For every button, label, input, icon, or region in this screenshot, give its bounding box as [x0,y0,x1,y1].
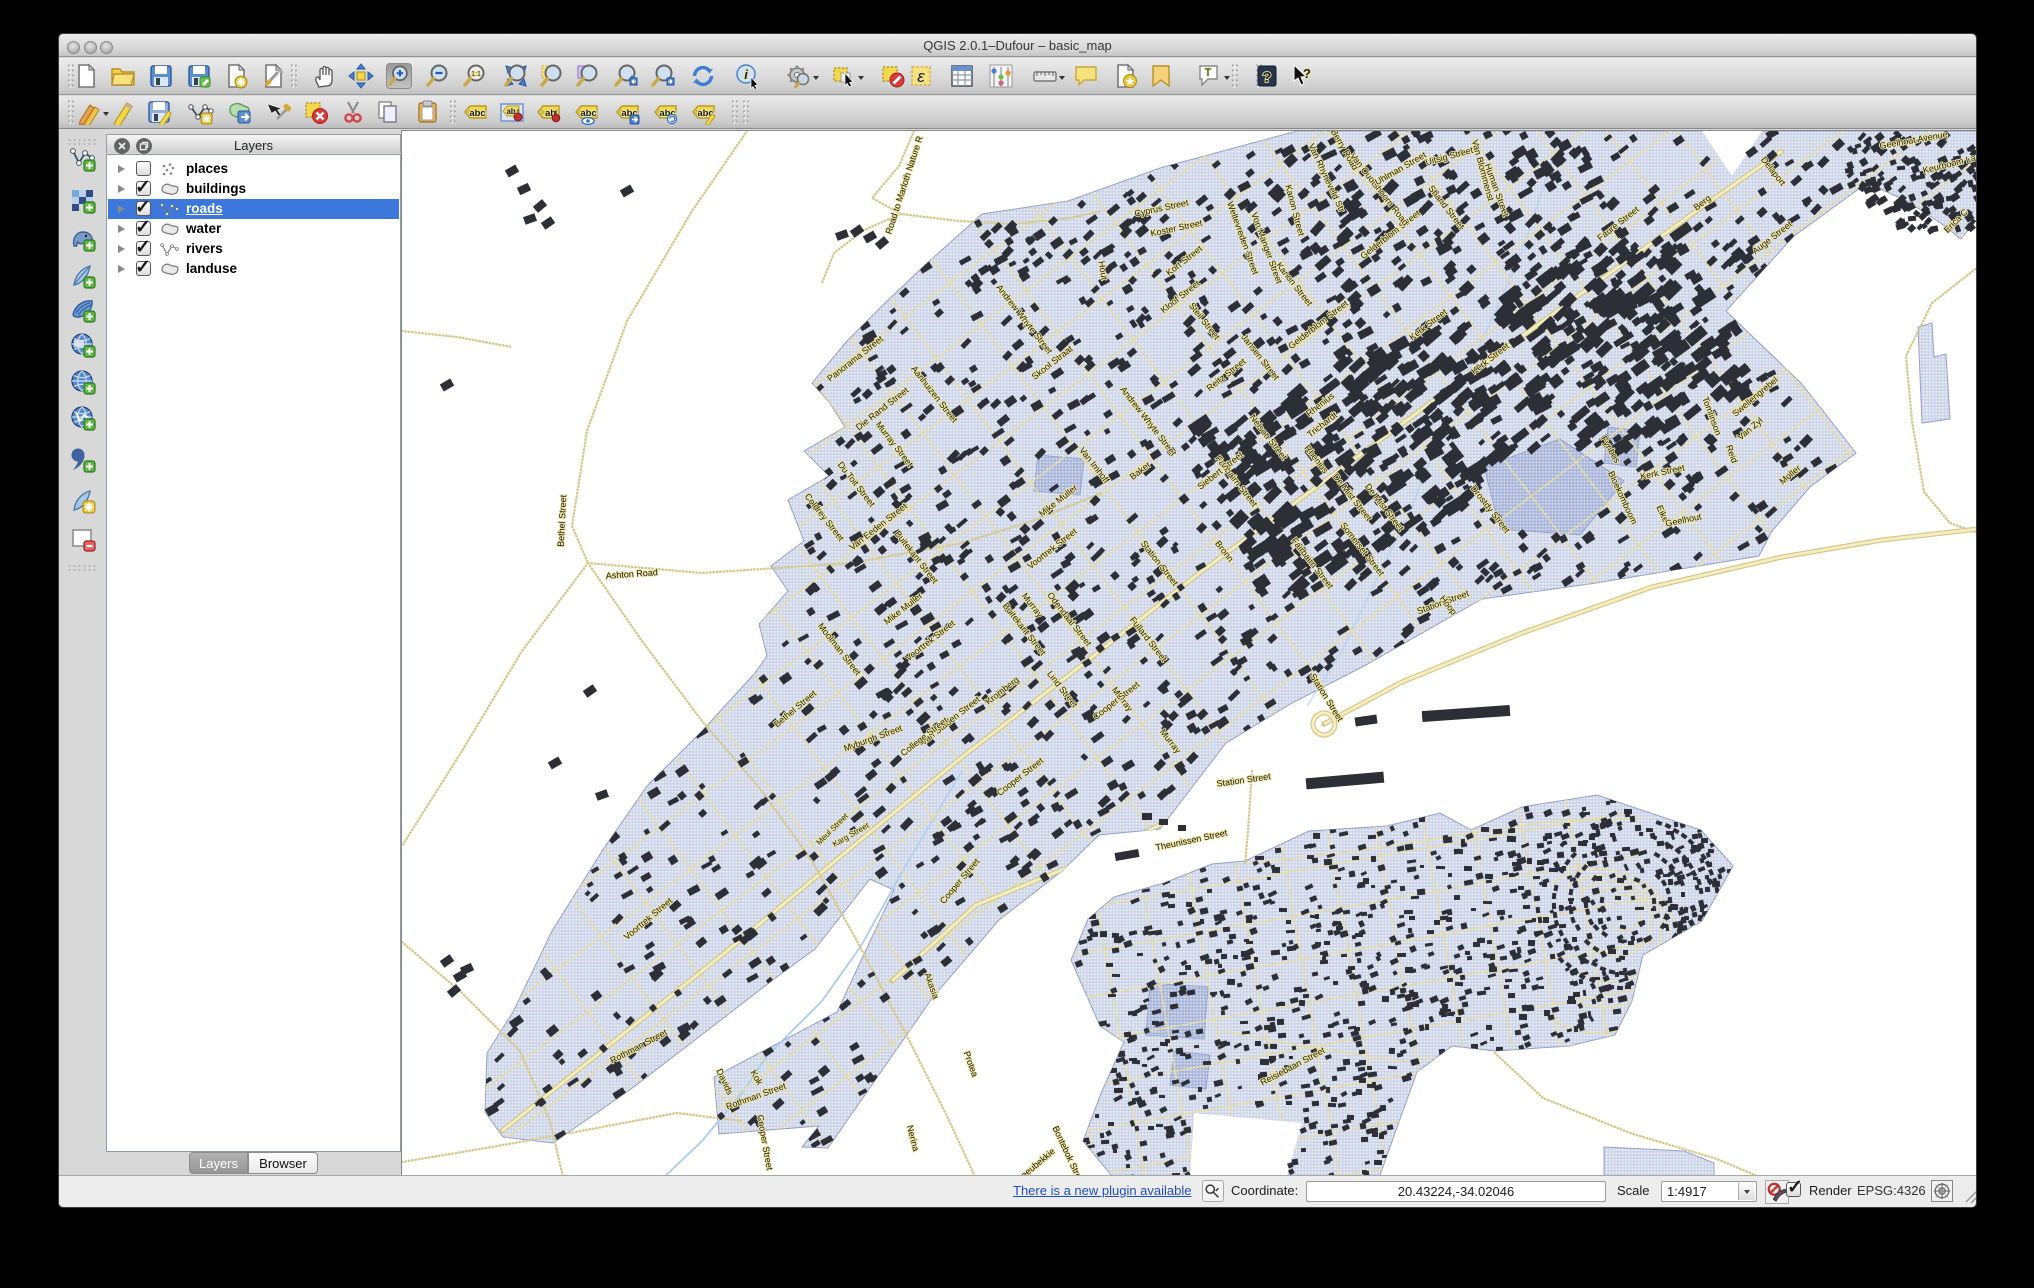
svg-text:abc: abc [469,108,485,119]
svg-text:T: T [1205,67,1212,79]
svg-text:i: i [744,67,748,82]
svg-text:1:1: 1:1 [471,71,481,78]
svg-text:?: ? [1262,69,1271,86]
svg-text:?: ? [1303,66,1311,81]
svg-text:ε: ε [917,67,925,86]
